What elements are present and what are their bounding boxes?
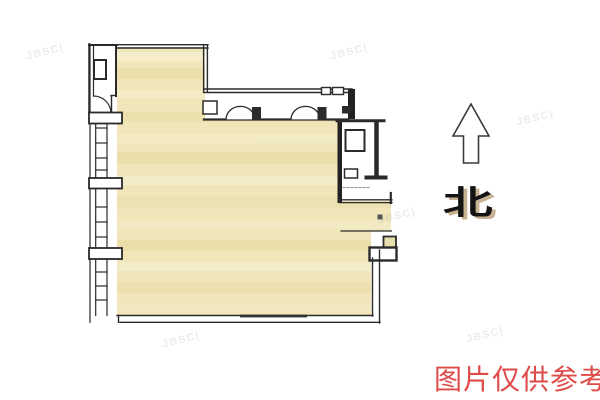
north-arrow-icon: [453, 104, 489, 163]
floorplan-page: JBSC| JBSC| JBSC| JBSC| JBSC| JBSC| 北 图片…: [0, 0, 600, 400]
floorplan-drawing: [0, 0, 600, 400]
entry-closet: [89, 44, 117, 114]
north-label: 北: [443, 186, 493, 219]
kitchen-bay: [337, 120, 386, 203]
reference-caption: 图片仅供参考: [434, 358, 600, 398]
bottom-wall: [117, 315, 380, 323]
wardrobe-doors: [203, 101, 351, 120]
floor-area: [115, 47, 395, 316]
